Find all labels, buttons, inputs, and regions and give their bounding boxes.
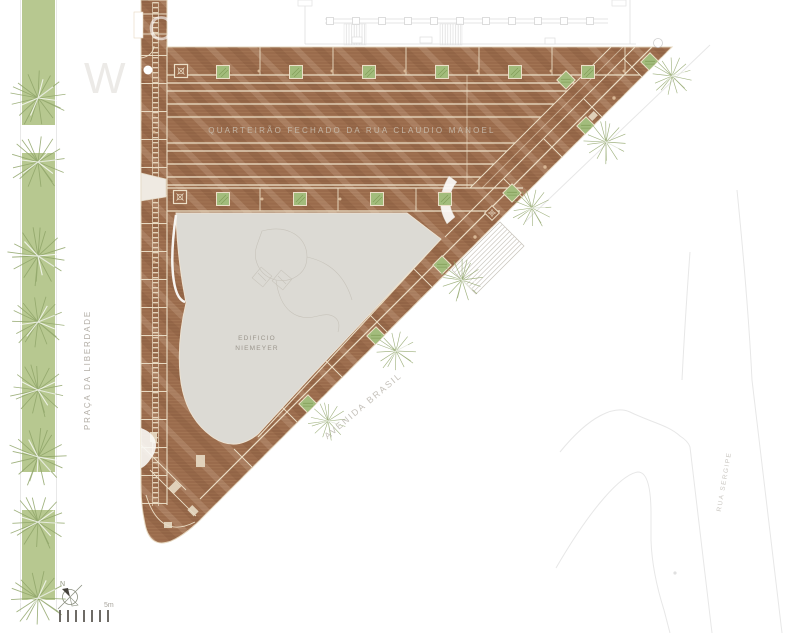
closed-block-label: QUARTEIRÃO FECHADO DA RUA CLAUDIO MANOEL: [208, 126, 495, 135]
planter-icon: [217, 193, 230, 206]
grate-icon: [175, 65, 188, 78]
north-label: N: [60, 581, 65, 588]
scale-label: 5m: [104, 602, 114, 609]
planter-icon: [294, 193, 307, 206]
grate-icon: [174, 191, 187, 204]
planter-icon: [371, 193, 384, 206]
rua-sergipe-label: RUA SERGIPE: [716, 451, 733, 512]
planter-icon: [582, 66, 595, 79]
scale-bar: 5m: [60, 602, 114, 622]
watermark-part2: CM: [148, 10, 209, 48]
planter-icon: [439, 193, 452, 206]
corner-marker: [654, 39, 663, 48]
north-arrow: N: [58, 581, 82, 609]
north-building-outline: [298, 0, 636, 45]
building-label-line1: EDIFICIO: [238, 335, 276, 342]
site-plan-drawing: EDIFICIO NIEMEYER QUARTEIRÃO FECHADO DA …: [0, 0, 800, 633]
site-plan-page: EDIFICIO NIEMEYER QUARTEIRÃO FECHADO DA …: [0, 0, 800, 633]
watermark-part1: W: [84, 54, 126, 103]
deck-circle-fixture: [144, 66, 153, 75]
planter-icon: [363, 66, 376, 79]
praca-liberdade-label: PRAÇA DA LIBERDADE: [83, 310, 92, 430]
planter-icon: [290, 66, 303, 79]
planter-icon: [509, 66, 522, 79]
praca-liberdade-strip: [0, 0, 77, 629]
stair-hatch-right: [440, 24, 462, 45]
building-label-line2: NIEMEYER: [235, 345, 279, 352]
column-grid: [327, 18, 594, 25]
planter-icon: [217, 66, 230, 79]
planter-icon: [436, 66, 449, 79]
